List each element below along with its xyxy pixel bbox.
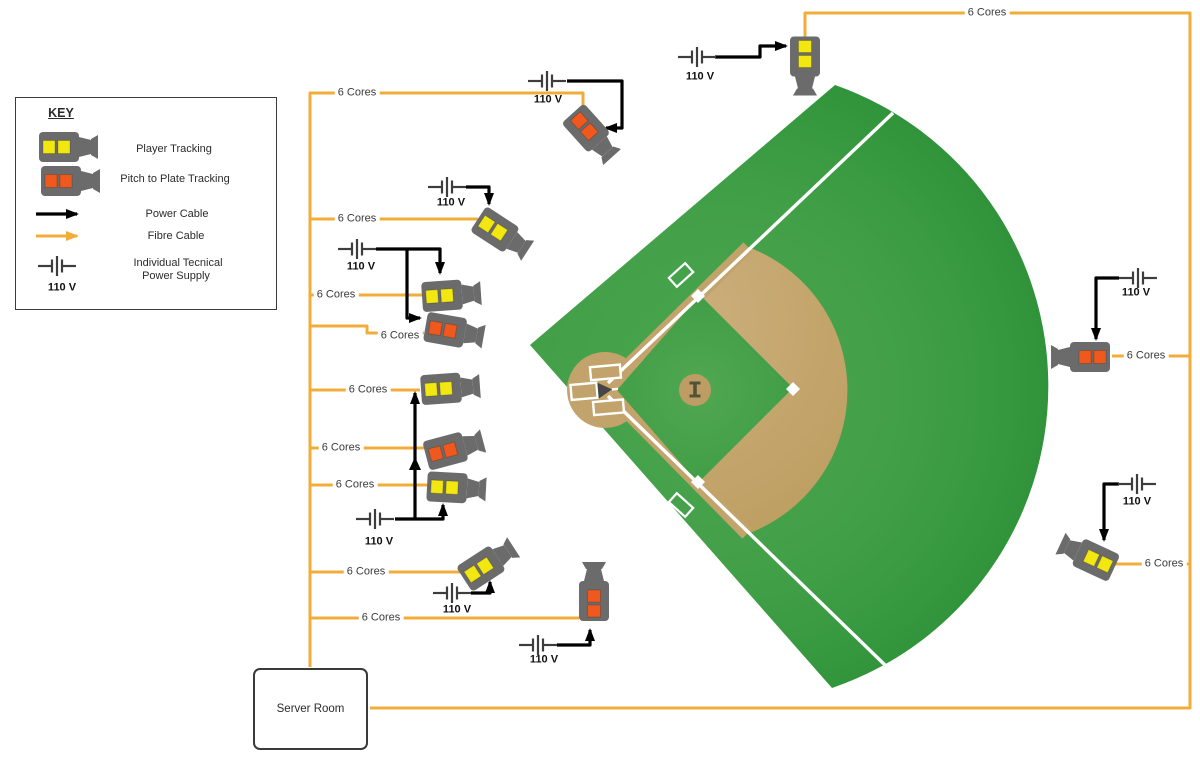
camera-12-player-tracking xyxy=(1054,530,1120,582)
fibre-label-7: 6 Cores xyxy=(333,479,378,492)
power-supply-icon-cam2 xyxy=(528,71,566,91)
voltage-label-cam2: 110 V xyxy=(534,94,562,107)
fibre-label-3: 6 Cores xyxy=(314,289,359,302)
camera-1-player-tracking xyxy=(790,37,820,96)
power-cable-cam1 xyxy=(715,46,786,57)
key-voltage-label: 110 V xyxy=(48,282,76,295)
fibre-label-5: 6 Cores xyxy=(346,384,391,397)
power-cable-cam12 xyxy=(1104,484,1119,540)
key-label-power-supply-line2: Power Supply xyxy=(142,270,210,282)
diagram-canvas: KEY Player Tracking Pitch to Plate Track… xyxy=(0,0,1200,759)
key-label-fibre-cable: Fibre Cable xyxy=(148,230,205,242)
camera-8-player-tracking xyxy=(426,471,486,504)
server-room-label: Server Room xyxy=(277,703,345,715)
camera-2-pitch-to-plate xyxy=(561,103,623,167)
power-cable-cam5 xyxy=(407,249,420,318)
voltage-label-cam9: 110 V xyxy=(443,604,471,617)
power-supply-icon-cam10 xyxy=(519,635,557,655)
fibre-label-10: 6 Cores xyxy=(965,7,1010,20)
power-supply-icon-cam1 xyxy=(678,47,716,67)
power-supply-icon-cam11 xyxy=(1119,268,1157,288)
power-supply-icon-cam9 xyxy=(433,583,471,603)
voltage-label-cam3: 110 V xyxy=(437,197,465,210)
voltage-label-cam6-7-8: 110 V xyxy=(365,536,393,549)
server-room-node: Server Room xyxy=(253,668,368,750)
power-supply-icon-cam3 xyxy=(428,177,466,197)
voltage-label-cam4-5: 110 V xyxy=(347,261,375,274)
fibre-label-1: 6 Cores xyxy=(335,87,380,100)
camera-5-pitch-to-plate xyxy=(423,312,486,352)
power-cable-cam11 xyxy=(1096,278,1119,339)
fibre-label-12: 6 Cores xyxy=(1142,558,1187,571)
camera-7-pitch-to-plate xyxy=(422,427,487,471)
fibre-label-4: 6 Cores xyxy=(378,330,423,343)
key-label-power-cable: Power Cable xyxy=(146,208,209,220)
fibre-label-8: 6 Cores xyxy=(344,566,389,579)
voltage-label-cam10: 110 V xyxy=(530,654,558,667)
power-supply-icon-cam12 xyxy=(1118,474,1156,494)
fibre-label-11: 6 Cores xyxy=(1124,350,1169,363)
power-arrowhead-cam7 xyxy=(409,457,421,470)
voltage-label-cam1: 110 V xyxy=(686,71,714,84)
power-cable-cam8 xyxy=(395,505,443,519)
power-supply-icon-cam4-5 xyxy=(338,239,376,259)
camera-3-player-tracking xyxy=(470,206,536,263)
camera-4-player-tracking xyxy=(421,278,482,312)
voltage-label-cam12: 110 V xyxy=(1123,496,1151,509)
power-cable-cam10 xyxy=(557,630,590,645)
fibre-label-2: 6 Cores xyxy=(335,213,380,226)
camera-10-pitch-to-plate xyxy=(579,562,609,621)
camera-11-pitch-to-plate xyxy=(1051,342,1110,372)
key-label-power-supply-line1: Individual Tecnical xyxy=(133,257,222,269)
camera-6-player-tracking xyxy=(420,371,481,405)
fibre-label-9: 6 Cores xyxy=(359,612,404,625)
voltage-label-cam11: 110 V xyxy=(1122,287,1150,300)
power-supply-icon-cam6-7-8 xyxy=(356,509,394,529)
key-label-pitch-to-plate: Pitch to Plate Tracking xyxy=(120,173,229,185)
key-heading: KEY xyxy=(48,106,74,120)
power-cable-cam3 xyxy=(466,187,489,204)
fibre-label-6: 6 Cores xyxy=(319,442,364,455)
key-label-player-tracking: Player Tracking xyxy=(136,143,212,155)
